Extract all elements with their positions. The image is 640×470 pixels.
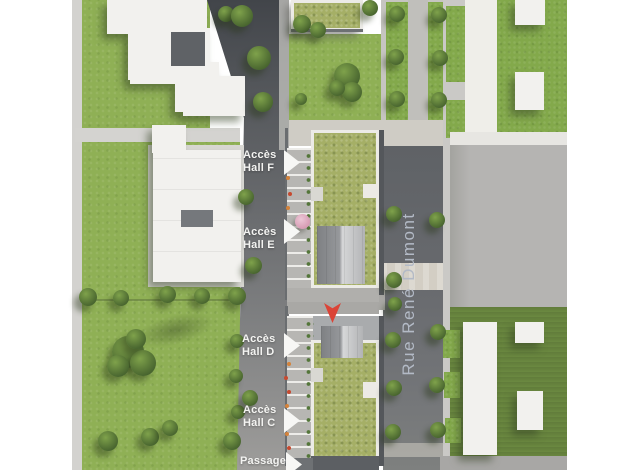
- tree: [247, 46, 271, 70]
- street-tree: [430, 422, 446, 438]
- flower-dot: [287, 446, 291, 450]
- building-court-north: [0, 0, 420, 60]
- flower-dot: [284, 376, 288, 380]
- access-label-hall-d: Accès Hall D: [242, 333, 275, 359]
- building-southeast-2: [500, 380, 560, 440]
- tree: [126, 329, 146, 349]
- building-southeast-1: [500, 310, 560, 355]
- street-tree: [388, 49, 404, 65]
- tree: [231, 5, 253, 27]
- white-path: [465, 0, 497, 132]
- building-northeast-1: [500, 0, 560, 40]
- flower-dot: [285, 432, 289, 436]
- tree: [293, 15, 311, 33]
- tree: [245, 257, 262, 274]
- street-tree: [431, 92, 447, 108]
- tree: [130, 350, 156, 376]
- site-plan-render: Rue René Dumont Accès Hall F Accès Hall …: [0, 0, 640, 470]
- flower-dot: [287, 362, 291, 366]
- access-label-hall-c: Accès Hall C: [243, 404, 276, 430]
- residential-block-north: [285, 126, 385, 302]
- tree: [228, 287, 246, 305]
- tree: [310, 22, 326, 38]
- tree: [229, 369, 243, 383]
- tree: [79, 288, 97, 306]
- planting-strip: [446, 6, 466, 82]
- flower-dot: [288, 192, 292, 196]
- street-tree: [389, 91, 405, 107]
- tree: [253, 92, 273, 112]
- flower-dot: [286, 206, 290, 210]
- crossing-light: [383, 443, 443, 457]
- tree: [162, 420, 178, 436]
- tree: [113, 290, 129, 306]
- tree: [223, 432, 241, 450]
- street-tree: [432, 50, 448, 66]
- tree: [98, 431, 118, 451]
- access-label-hall-f: Accès Hall F: [243, 149, 276, 175]
- tree: [238, 189, 254, 205]
- street-tree: [385, 424, 401, 440]
- flower-dot: [287, 390, 291, 394]
- street-tree: [429, 377, 445, 393]
- flower-dot: [286, 176, 290, 180]
- tree: [295, 93, 307, 105]
- street-tree: [430, 324, 446, 340]
- street-tree: [389, 6, 405, 22]
- building-northeast-2: [500, 60, 560, 120]
- access-label-hall-e: Accès Hall E: [243, 226, 276, 252]
- residential-block-south: [285, 302, 385, 470]
- tree: [194, 288, 210, 304]
- plaza: [450, 145, 567, 307]
- street-tree: [386, 380, 402, 396]
- tree: [107, 355, 129, 377]
- street-tree: [429, 212, 445, 228]
- flower-dot: [285, 404, 289, 408]
- tree: [141, 428, 159, 446]
- access-label-passage: Passage: [240, 455, 286, 468]
- tree: [159, 286, 176, 303]
- plaza-walkway: [450, 132, 567, 145]
- street-name-rue-rene-dumont: Rue René Dumont: [399, 212, 419, 375]
- street-tree: [431, 7, 447, 23]
- tree: [329, 80, 345, 96]
- tree: [342, 82, 362, 102]
- tree: [362, 0, 378, 16]
